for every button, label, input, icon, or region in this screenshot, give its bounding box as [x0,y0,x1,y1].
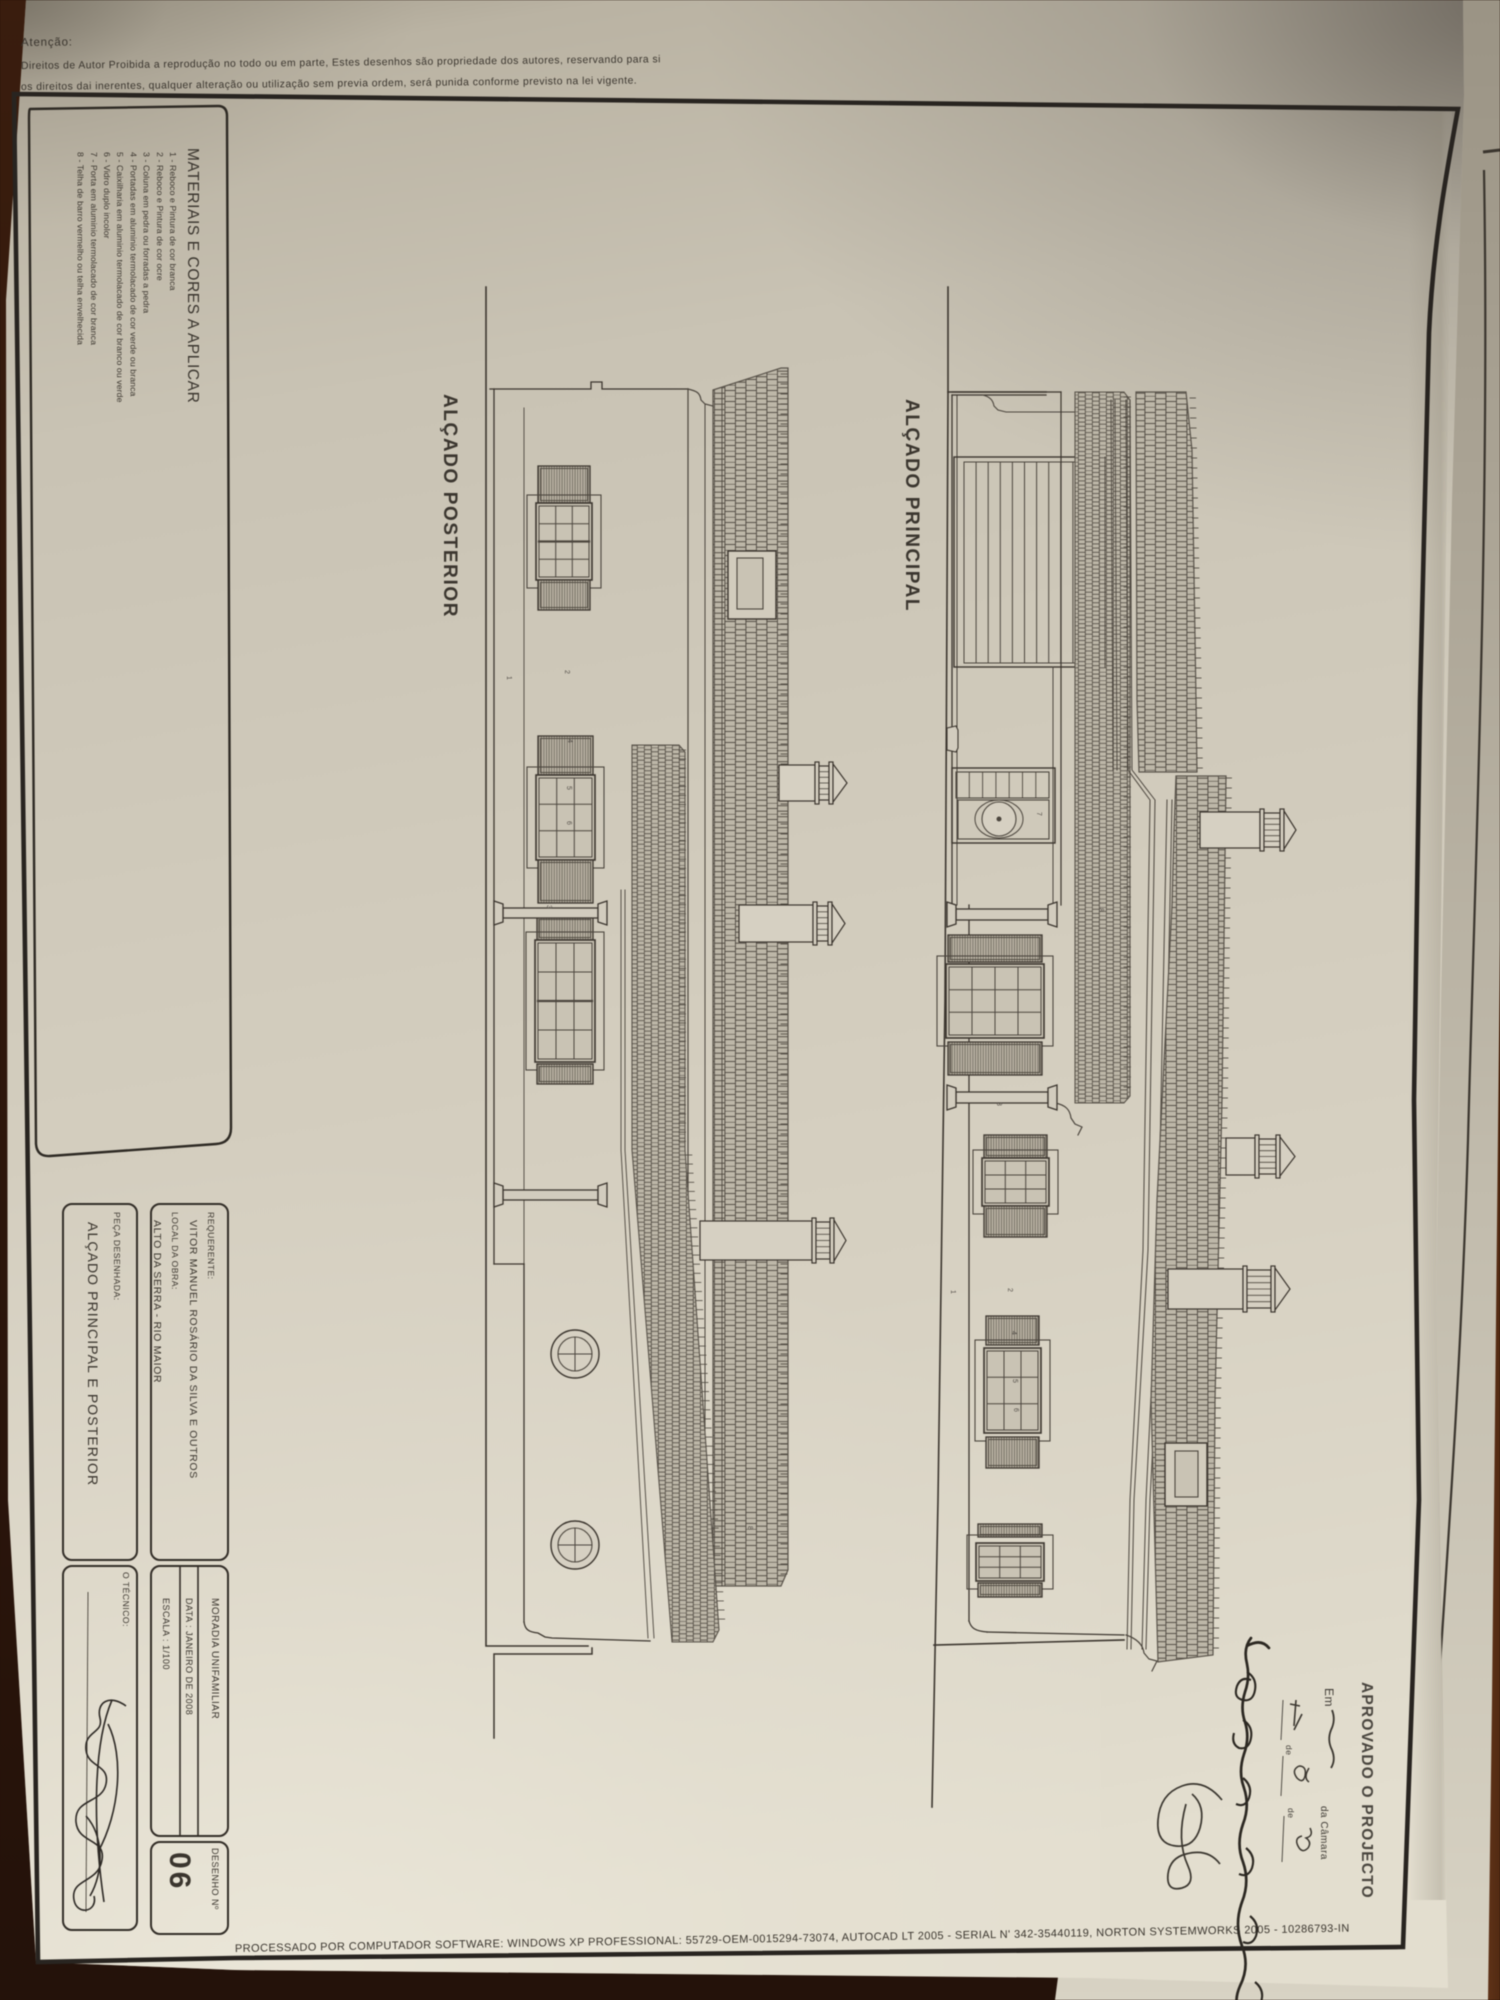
svg-text:APROVADO O PROJECTO: APROVADO O PROJECTO [1358,1682,1375,1899]
svg-text:da Câmara: da Câmara [1318,1806,1329,1860]
svg-text:de: de [1286,1808,1296,1818]
svg-text:Em: Em [1322,1688,1336,1707]
svg-text:6: 6 [565,821,572,825]
svg-text:LOCAL DA OBRA:: LOCAL DA OBRA: [170,1212,180,1290]
svg-text:2 - Reboco e Pintura de cor oc: 2 - Reboco e Pintura de cor ocre [155,152,165,281]
svg-text:ALÇADO POSTERIOR: ALÇADO POSTERIOR [439,394,460,618]
svg-text:DESENHO Nº: DESENHO Nº [210,1848,220,1910]
svg-text:2: 2 [1006,1288,1013,1292]
svg-text:8: 8 [746,1526,753,1530]
svg-text:REQUERENTE:: REQUERENTE: [206,1212,216,1280]
svg-text:ESCALA : 1/100: ESCALA : 1/100 [161,1598,171,1670]
svg-text:6 - Vidro duplo incolor: 6 - Vidro duplo incolor [102,152,112,239]
svg-text:de: de [1284,1745,1294,1755]
svg-text:PEÇA DESENHADA:: PEÇA DESENHADA: [112,1212,122,1301]
svg-text:3: 3 [995,1102,1002,1106]
svg-text:O TÉCNICO:: O TÉCNICO: [121,1572,131,1627]
svg-text:06: 06 [163,1852,196,1891]
svg-text:7: 7 [1035,812,1042,816]
svg-text:ALÇADO PRINCIPAL: ALÇADO PRINCIPAL [901,399,922,612]
svg-text:4 - Portadas em aluminio termo: 4 - Portadas em aluminio termolacado de … [128,152,138,397]
svg-text:5: 5 [1011,1379,1018,1383]
svg-text:4: 4 [1010,1331,1017,1335]
svg-text:3: 3 [545,905,552,909]
svg-text:1: 1 [505,676,512,680]
svg-text:3 - Coluna em pedra ou forrada: 3 - Coluna em pedra ou forradas a pedra [142,152,152,313]
svg-text:5 - Caixilharia em aluminio te: 5 - Caixilharia em aluminio termolacado … [115,152,125,403]
svg-text:7 - Porta em aluminio termolac: 7 - Porta em aluminio termolacado de cor… [89,152,99,345]
svg-text:5: 5 [565,786,572,790]
svg-text:4: 4 [566,739,573,743]
svg-text:VITOR MANUEL ROSÁRIO DA SILVA: VITOR MANUEL ROSÁRIO DA SILVA E OUTROS [187,1220,200,1479]
svg-text:8 - Telha de barro vermelho ou: 8 - Telha de barro vermelho ou telha env… [76,152,86,345]
svg-text:DATA : JANEIRO DE 2008: DATA : JANEIRO DE 2008 [184,1598,194,1715]
svg-text:1 - Reboco e Pintura de cor br: 1 - Reboco e Pintura de cor branca [168,152,178,291]
svg-text:ALTO DA SERRA - RIO MAIOR: ALTO DA SERRA - RIO MAIOR [151,1220,162,1383]
svg-text:8: 8 [1097,908,1104,912]
svg-text:MATERIAIS E CORES A APLICAR: MATERIAIS E CORES A APLICAR [184,148,201,403]
svg-text:Atenção:: Atenção: [21,36,73,49]
svg-text:6: 6 [1012,1408,1019,1412]
svg-text:2: 2 [563,670,570,674]
svg-text:1: 1 [949,1290,956,1294]
svg-text:MORADIA UNIFAMILIAR: MORADIA UNIFAMILIAR [209,1598,220,1719]
svg-text:ALÇADO PRINCIPAL E POSTERIOR: ALÇADO PRINCIPAL E POSTERIOR [85,1222,101,1486]
